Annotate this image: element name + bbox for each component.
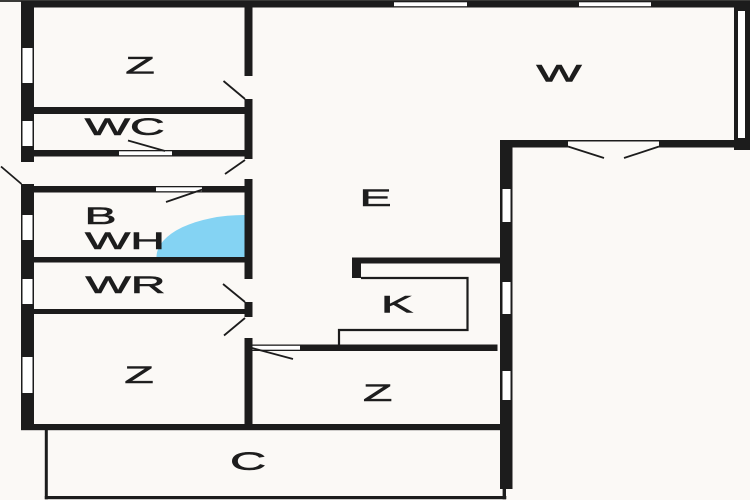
svg-text:Z: Z xyxy=(125,53,154,80)
svg-text:WR: WR xyxy=(86,272,166,299)
svg-text:Z: Z xyxy=(363,380,392,407)
svg-text:K: K xyxy=(381,292,413,319)
svg-text:W: W xyxy=(536,61,582,88)
svg-text:Z: Z xyxy=(124,362,153,389)
svg-text:WH: WH xyxy=(85,228,165,255)
svg-text:B: B xyxy=(84,203,116,230)
svg-text:WC: WC xyxy=(85,114,165,141)
svg-text:C: C xyxy=(230,448,266,476)
svg-text:E: E xyxy=(359,185,391,212)
